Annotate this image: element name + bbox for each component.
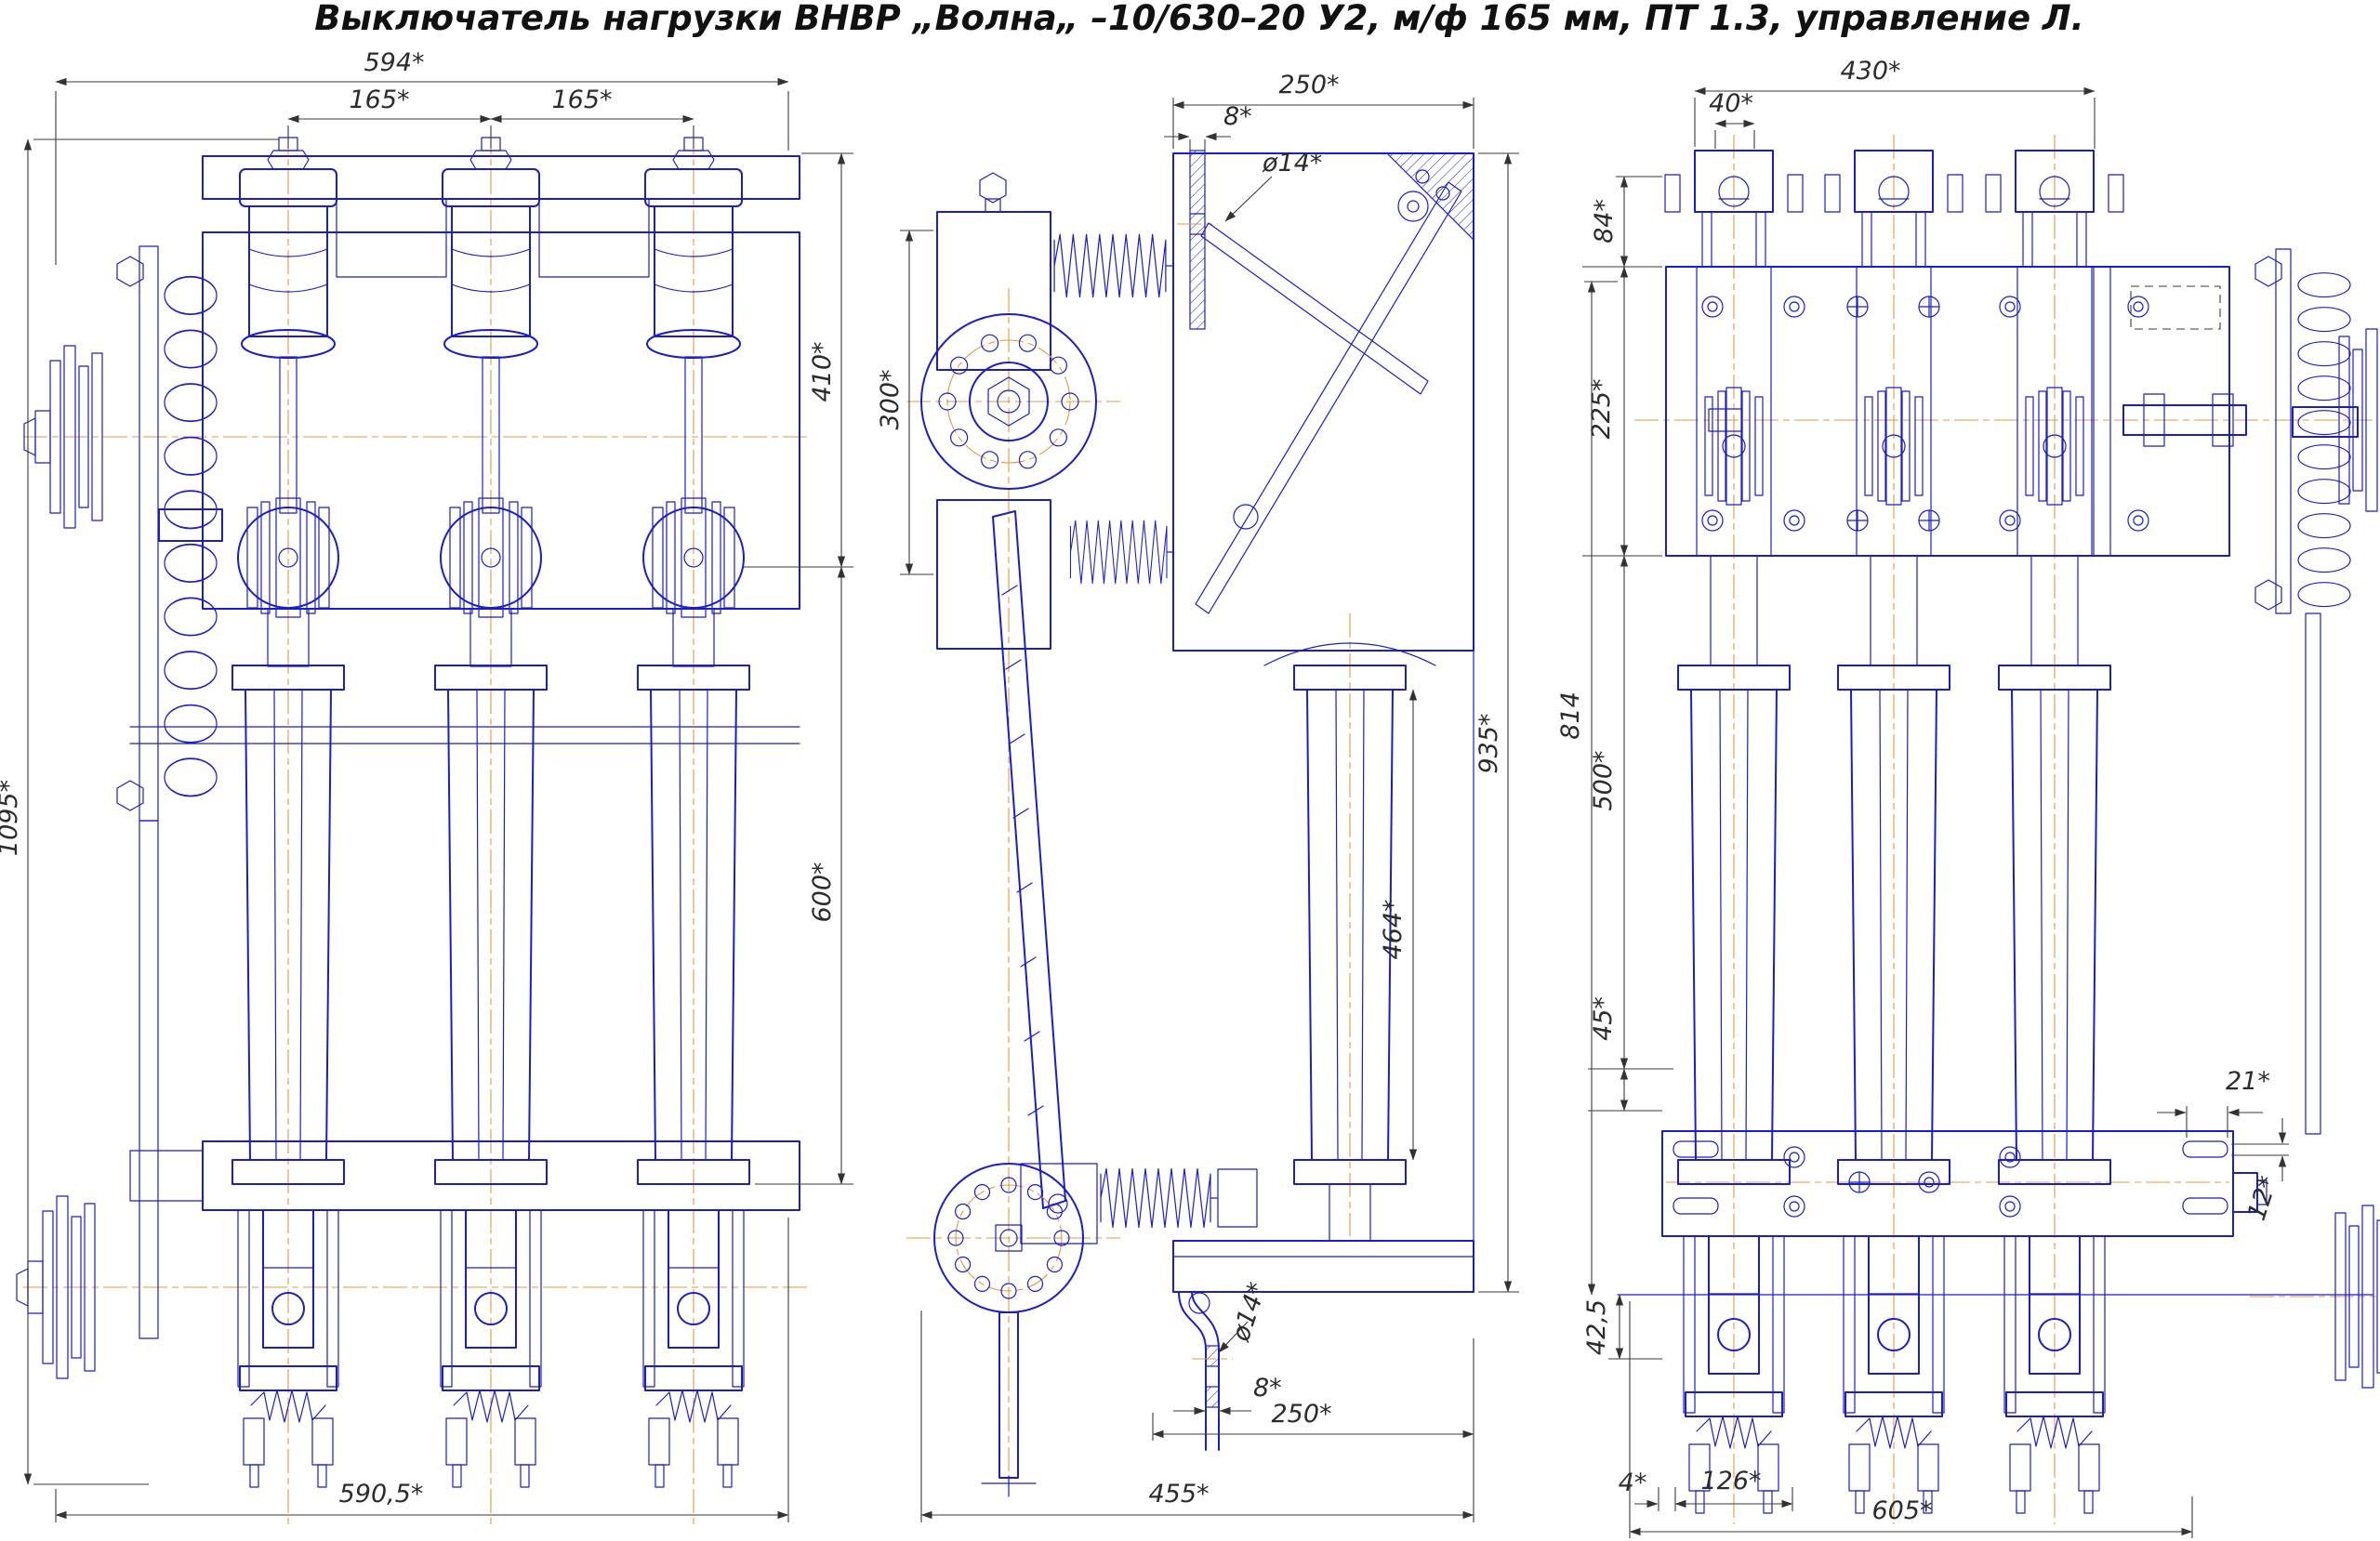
dim-side-inner-depth: 250* — [1271, 1400, 1331, 1429]
dim-side-base-depth: 455* — [1148, 1480, 1209, 1508]
dim-side-plate-top: 8* — [1223, 102, 1252, 131]
drawing-title: Выключатель нагрузки ВНВР „Волна„ –10/63… — [314, 0, 2083, 38]
dim-rear-base-drop: 42,5 — [1582, 1299, 1611, 1355]
dim-rear-shaft-height: 814 — [1556, 691, 1585, 740]
dim-rear-gap: 4* — [1619, 1469, 1647, 1497]
dim-front-overall-height: 1095* — [0, 780, 23, 856]
dim-side-frame-height: 935* — [1474, 713, 1503, 773]
dim-front-insulator-height: 600* — [808, 862, 837, 922]
dim-front-pitch-right: 165* — [551, 86, 612, 114]
dim-rear-pole-width: 126* — [1700, 1467, 1761, 1495]
dim-rear-top-offset: 84* — [1590, 199, 1619, 244]
dim-rear-overall-width: 430* — [1840, 57, 1900, 86]
dim-front-base-width: 590,5* — [339, 1480, 424, 1508]
dim-rear-mid-height: 500* — [1589, 750, 1618, 810]
dim-side-top-depth: 250* — [1278, 71, 1339, 99]
drawing-canvas: Выключатель нагрузки ВНВР „Волна„ –10/63… — [0, 0, 2380, 1541]
dim-side-plate-bottom: 8* — [1253, 1374, 1282, 1403]
dim-rear-lug-width: 40* — [1709, 89, 1753, 118]
dim-front-pitch-left: 165* — [349, 86, 409, 114]
dim-front-upper-height: 410* — [808, 341, 837, 402]
dim-rear-slot-offset: 21* — [2226, 1067, 2270, 1096]
dim-front-overall-width: 594* — [364, 48, 424, 77]
dim-side-drive-height: 300* — [876, 369, 905, 429]
dim-side-insulator-height: 464* — [1379, 899, 1408, 959]
dim-rear-base-width: 605* — [1871, 1496, 1932, 1525]
dim-side-hole-top: ø14* — [1262, 149, 1322, 178]
dim-rear-bracket-offset: 45* — [1589, 996, 1618, 1041]
